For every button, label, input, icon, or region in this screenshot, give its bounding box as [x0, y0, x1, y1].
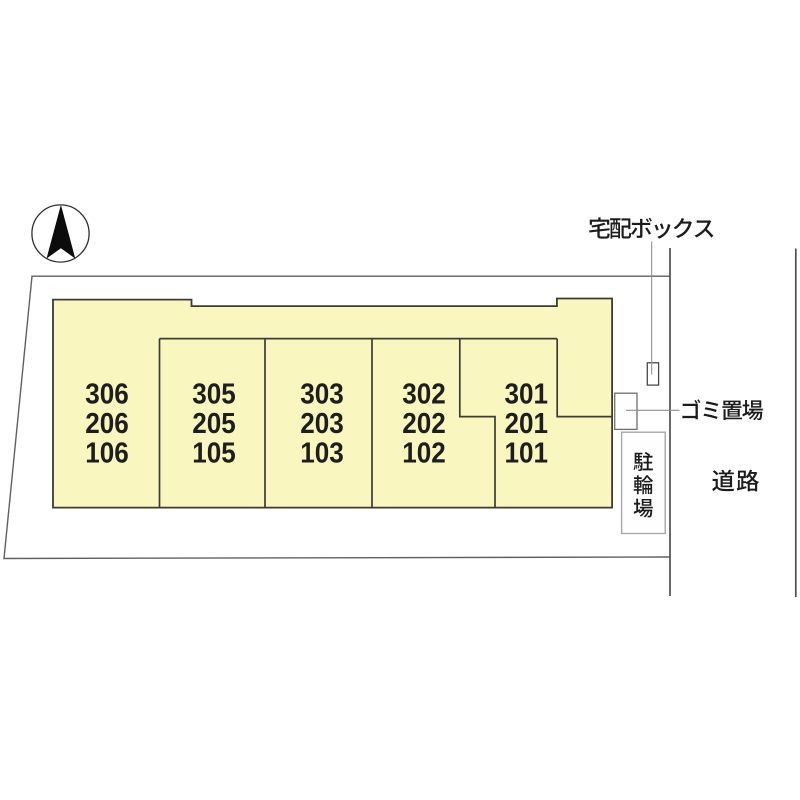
svg-text:306: 306 [85, 379, 129, 411]
svg-text:305: 305 [192, 379, 236, 411]
svg-text:301: 301 [505, 379, 549, 411]
svg-text:302: 302 [402, 379, 446, 411]
svg-text:102: 102 [402, 437, 446, 469]
svg-text:201: 201 [505, 408, 549, 440]
svg-text:303: 303 [300, 379, 344, 411]
svg-text:205: 205 [192, 408, 236, 440]
svg-text:203: 203 [300, 408, 344, 440]
svg-text:106: 106 [85, 437, 129, 469]
svg-text:206: 206 [85, 408, 129, 440]
svg-text:202: 202 [402, 408, 446, 440]
svg-text:103: 103 [300, 437, 344, 469]
svg-text:101: 101 [505, 437, 549, 469]
svg-text:105: 105 [192, 437, 236, 469]
